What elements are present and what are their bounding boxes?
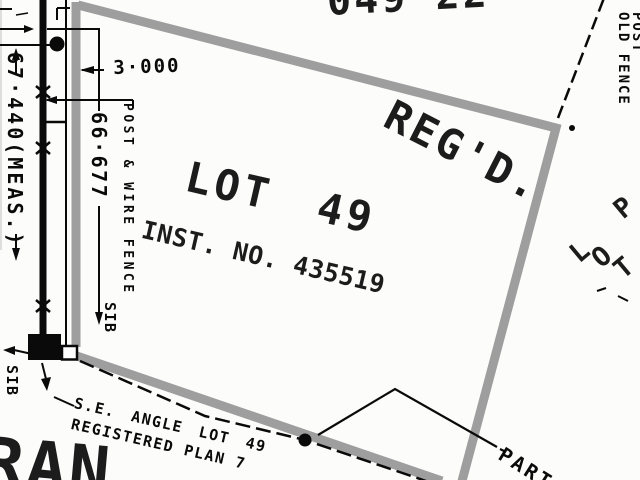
survey-plan-page: 049'22 REG'D. LOT 49 INST. NO. 435519 RA…	[0, 0, 640, 480]
dimension-66677: 66·677	[89, 112, 109, 199]
corner-dot-northeast	[569, 125, 575, 131]
se-angle-leader	[41, 363, 74, 406]
right-stamp-fragments	[597, 288, 628, 301]
dimension-67440: 67·440(MEAS.)	[5, 52, 25, 248]
post-wire-fence-label: POST & WIRE FENCE	[121, 103, 134, 296]
old-fence-dashed-line	[558, 0, 604, 118]
sib-label-west: SIB	[4, 365, 19, 397]
monument-filled-square	[28, 334, 61, 360]
monument-open-square	[62, 346, 77, 360]
dim-3000-arrow	[80, 66, 104, 74]
sib-label-corner: SIB	[102, 302, 117, 334]
old-fence-label: OLD FENCE	[616, 12, 630, 106]
scan-artifact	[0, 0, 2, 250]
dimension-3000: 3·000	[113, 57, 181, 78]
monument-circle	[50, 37, 65, 52]
old-fence-post-label: POST	[630, 12, 640, 54]
